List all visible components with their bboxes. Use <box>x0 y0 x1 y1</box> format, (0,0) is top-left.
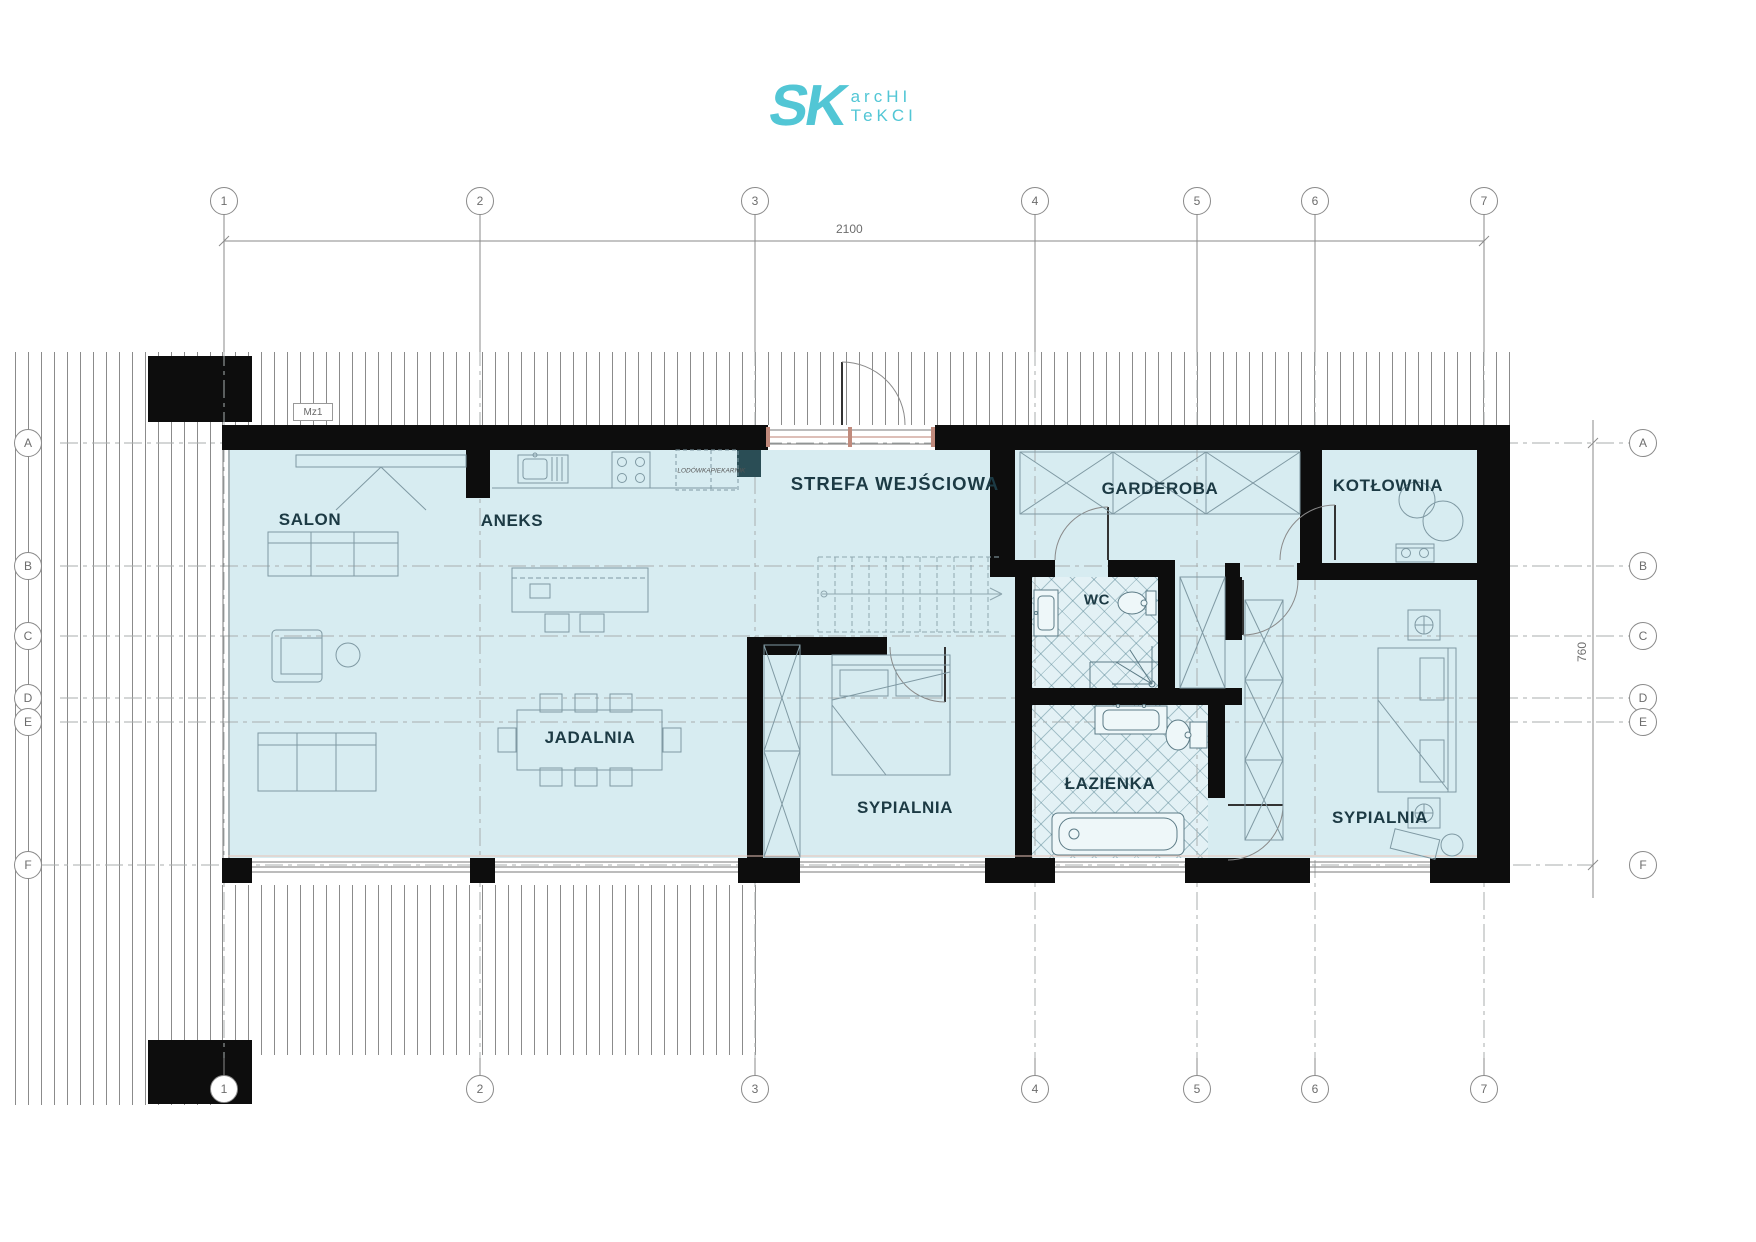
grid-column-bottom-4: 4 <box>1021 1075 1049 1103</box>
grid-column-top-6: 6 <box>1301 187 1329 215</box>
tv-unit-icon <box>296 455 466 510</box>
grid-lines <box>41 252 1630 1075</box>
room-label-lazienka: ŁAZIENKA <box>1065 774 1156 794</box>
grid-column-top-3: 3 <box>741 187 769 215</box>
fridge-label: LODÓWKA <box>677 468 710 475</box>
pouf-icon <box>1441 834 1463 856</box>
plan-drawing <box>0 0 1756 1242</box>
grid-column-bottom-2: 2 <box>466 1075 494 1103</box>
wc-toilet-icon <box>1118 591 1156 615</box>
room-label-sypialnia2: SYPIALNIA <box>1332 808 1428 828</box>
grid-column-bottom-3: 3 <box>741 1075 769 1103</box>
grid-column-bottom-7: 7 <box>1470 1075 1498 1103</box>
oven-label: PIEKARNIK <box>711 468 746 475</box>
grid-column-top-5: 5 <box>1183 187 1211 215</box>
grid-row-left-C: C <box>14 622 42 650</box>
grid-column-bottom-1: 1 <box>210 1075 238 1103</box>
bathtub-icon <box>1052 813 1184 855</box>
room-label-garderoba: GARDEROBA <box>1102 479 1219 499</box>
room-label-salon: SALON <box>279 510 342 530</box>
grid-row-right-E: E <box>1629 708 1657 736</box>
grid-row-right-F: F <box>1629 851 1657 879</box>
floor-plan-page: SK arcHI TeKCI <box>0 0 1756 1242</box>
stairs-icon <box>818 557 1002 632</box>
room-label-sypialnia1: SYPIALNIA <box>857 798 953 818</box>
window-marker: Mz1 <box>293 403 333 421</box>
room-label-strefa: STREFA WEJŚCIOWA <box>791 473 1000 495</box>
sofa2-icon <box>258 733 376 791</box>
armchair-icon <box>272 630 360 682</box>
dim-width-text: 2100 <box>836 222 863 236</box>
bathroom-sink-icon <box>1095 705 1167 735</box>
grid-column-top-1: 1 <box>210 187 238 215</box>
grid-row-right-C: C <box>1629 622 1657 650</box>
grid-row-left-F: F <box>14 851 42 879</box>
wc-sink-icon <box>1034 590 1058 636</box>
grid-row-right-B: B <box>1629 552 1657 580</box>
closet-x-icon <box>1180 577 1225 688</box>
grid-row-left-E: E <box>14 708 42 736</box>
room-label-wc: WC <box>1084 592 1110 609</box>
grid-column-top-2: 2 <box>466 187 494 215</box>
grid-column-bottom-6: 6 <box>1301 1075 1329 1103</box>
entrance-door-arc <box>842 362 905 425</box>
grid-row-left-B: B <box>14 552 42 580</box>
desk-icon <box>1390 829 1439 860</box>
grid-row-left-A: A <box>14 429 42 457</box>
wc-door-arc <box>1055 507 1108 560</box>
grid-column-bottom-5: 5 <box>1183 1075 1211 1103</box>
shower-icon <box>1090 646 1158 688</box>
grid-row-right-A: A <box>1629 429 1657 457</box>
grid-column-top-7: 7 <box>1470 187 1498 215</box>
wardrobe1-icon <box>764 645 800 857</box>
bathroom-toilet-icon <box>1166 720 1207 750</box>
sofa-icon <box>268 532 398 576</box>
room-label-aneks: ANEKS <box>481 511 544 531</box>
hob-icon <box>612 452 650 488</box>
dim-height-text: 760 <box>1575 642 1589 662</box>
bathroom-door-arc <box>1228 805 1283 860</box>
kitchen-island-icon <box>512 568 648 632</box>
bed1-icon <box>832 655 950 775</box>
grid-column-top-4: 4 <box>1021 187 1049 215</box>
room-label-kotlownia: KOTŁOWNIA <box>1333 476 1443 496</box>
room-label-jadalnia: JADALNIA <box>545 728 636 748</box>
